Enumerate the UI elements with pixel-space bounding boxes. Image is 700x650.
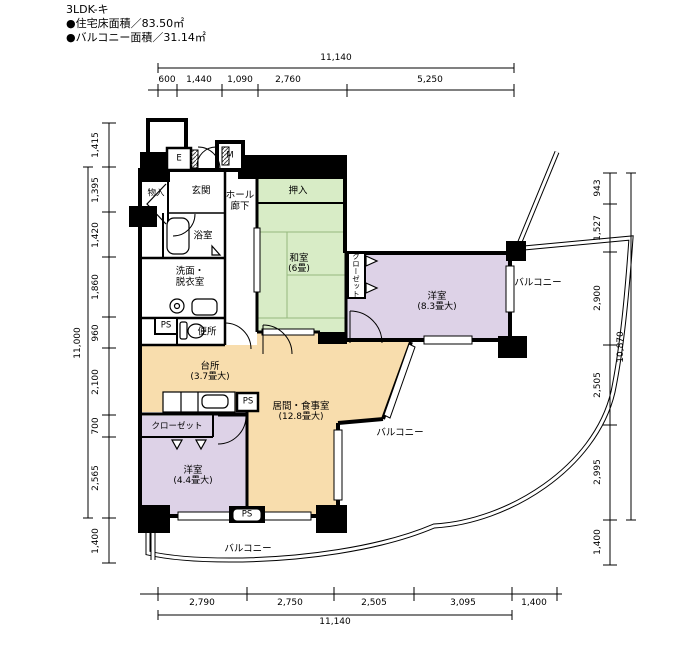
balcony-label-bottom: バルコニー [224,544,271,555]
room-label-washroom: 洗面・ 脱衣室 [176,266,205,288]
dim-left-seg-6: 700 [91,417,101,434]
kitchen-sink [202,395,228,408]
dim-left-seg-8: 1,400 [91,528,101,554]
dim-left-seg-1: 1,395 [91,177,101,203]
dim-top-seg-4: 5,250 [417,75,443,85]
dim-right-seg-3: 2,505 [593,372,603,398]
meter-label: M [226,151,233,162]
dim-right-seg-1: 1,527 [593,215,603,241]
sink [192,299,217,315]
ps-label-1: PS [161,321,172,332]
dim-top-seg-3: 2,760 [275,75,301,85]
dim-bottom-seg-0: 2,790 [189,598,215,608]
dim-left-total: 11,000 [73,327,83,359]
toilet-tank [180,322,187,339]
closet1-label: クローゼット [351,253,362,298]
dim-bottom-seg-3: 3,095 [450,598,476,608]
room-label-bedroom1: 洋室 (8.3畳大) [417,291,456,313]
dim-left-seg-5: 2,100 [91,369,101,395]
dim-top-seg-0: 600 [158,75,175,85]
room-label-washitsu: 和室 (6畳) [288,253,310,275]
dim-left-seg-0: 1,415 [91,132,101,158]
dim-right-seg-0: 943 [593,179,603,196]
room-label-entrance: 玄関 [191,186,210,197]
ps-label-3: PS [242,510,253,521]
floorplan-page: 3LDK-キ ●住宅床面積／83.50㎡ ●バルコニー面積／31.14㎡ 11,… [0,0,700,650]
dim-right-seg-5: 1,400 [593,529,603,555]
room-label-hall: ホール 廊下 [226,190,255,212]
dim-left-seg-3: 1,860 [91,274,101,300]
dim-right-seg-4: 2,995 [593,459,603,485]
dim-top-seg-1: 1,440 [186,75,212,85]
room-label-kitchen: 台所 (3.7畳大) [190,361,229,383]
dim-top-seg-2: 1,090 [227,75,253,85]
room-label-oshiire: 押入 [288,186,307,197]
bath-door-mark [212,246,220,255]
balcony-area-note: ●バルコニー面積／31.14㎡ [66,29,206,45]
dim-left-seg-2: 1,420 [91,222,101,248]
dim-bottom-seg-2: 2,505 [361,598,387,608]
balcony-label-right: バルコニー [514,278,561,289]
dim-right-seg-2: 2,900 [593,285,603,311]
dim-bottom-total: 11,140 [319,617,351,627]
dim-bottom-seg-4: 1,400 [521,598,547,608]
dim-right-total: 10,870 [616,331,626,363]
closet2-label: クローゼット [151,422,202,433]
room-label-bath: 浴室 [193,231,212,242]
room-label-living: 居間・食事室 (12.8畳大) [272,401,329,423]
dim-top-total: 11,140 [320,53,352,63]
room-label-storage: 物入 [147,189,164,200]
balcony-label-mid: バルコニー [376,428,423,439]
elevator-label: E [176,154,181,165]
room-label-bedroom2: 洋室 (4.4畳大) [173,465,212,487]
dim-bottom-seg-1: 2,750 [277,598,303,608]
room-label-toilet: 便所 [197,327,216,338]
bathtub [167,218,189,254]
dim-left-seg-4: 960 [91,324,101,341]
dim-left-seg-7: 2,565 [91,465,101,491]
ps-label-2: PS [243,397,254,408]
